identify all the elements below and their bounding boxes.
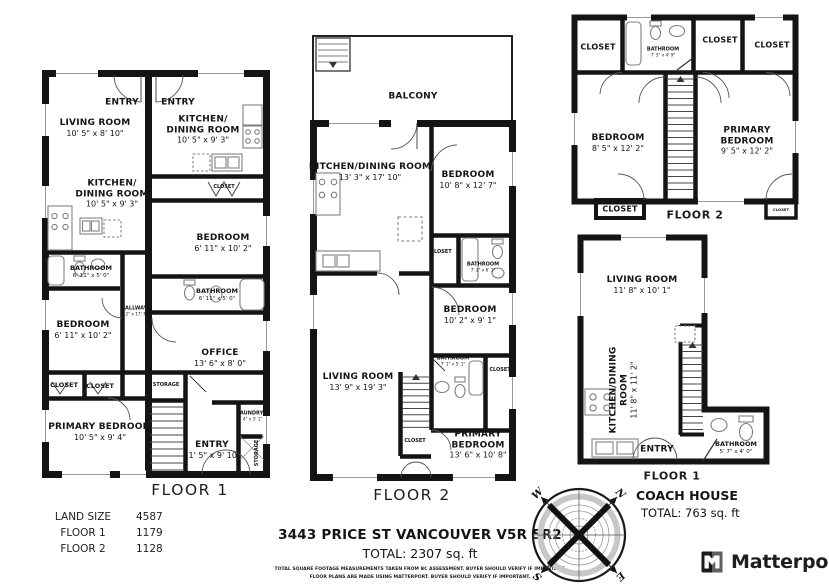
stat-value: 1179 [136,527,182,539]
coach-house-title: COACH HOUSE [636,488,740,503]
room-label-balcony: BALCONY [388,92,437,103]
room-label-closet-mid: CLOSET [430,250,451,256]
room-label-hallway: HALLWAY3' 2" x 17' 7" [120,307,147,318]
floorplan-sheet: ENTRY LIVING ROOM10' 5" x 8' 10" KITCHEN… [0,0,829,586]
stat-value: 4587 [136,511,182,523]
stat-row-floor2: FLOOR 21128 [46,541,182,557]
room-label-coach-primary: PRIMARYBEDROOM9' 5" x 12' 2" [720,126,773,157]
room-label-entry-right: ENTRY [161,98,195,109]
coach-floor1-caption: FLOOR 1 [644,470,701,483]
room-label-laundry: LAUNDRY2' 4" x 3' 1" [237,412,264,423]
room-label-coach-entry: ENTRY [640,445,674,456]
room-label-primary-bedroom: PRIMARY BEDROOM10' 5" x 9' 4" [48,422,152,442]
stat-label: FLOOR 1 [46,527,120,539]
room-label-bedroom-mid: BEDROOM10' 2" x 9' 1" [443,305,496,325]
coach-floor1-walls-drawing [576,233,771,473]
stat-value: 1128 [136,543,182,555]
coach-house-floor1-plan: LIVING ROOM11' 8" x 10' 1" KITCHEN/DININ… [576,233,771,473]
room-label-living-room: LIVING ROOM10' 5" x 8' 10" [60,118,131,138]
room-label-storage-small: STORAGE [153,383,180,389]
room-label-entry-left: ENTRY [105,98,139,109]
room-label-bedroom-right: BEDROOM6' 11" x 10' 2" [194,233,251,253]
balcony-outline [313,36,512,123]
room-label-kitchen-right: KITCHEN/DINING ROOM10' 5" x 9' 3" [166,115,239,146]
room-label-primary-bedroom: PRIMARYBEDROOM13' 6" x 10' 8" [449,430,506,461]
coach-house-total: TOTAL: 763 sq. ft [641,506,740,520]
room-label-closet-tl: CLOSET [580,42,615,51]
room-label-coach-living: LIVING ROOM11' 8" x 10' 1" [607,275,678,295]
coach-house-block: COACH HOUSE TOTAL: 763 sq. ft [636,488,740,520]
main-house-floor2-plan: BALCONY KITCHEN/DINING ROOM13' 3" x 17' … [305,25,520,485]
main-floor1-caption: FLOOR 1 [151,481,228,499]
room-label-bathroom-top: BATHROOM7' 2" x 6' 1" [467,263,499,274]
main-house-floor1-plan: ENTRY LIVING ROOM10' 5" x 8' 10" KITCHEN… [40,66,272,482]
room-label-closet-b: CLOSET [86,383,114,391]
room-label-closet-br: CLOSET [773,208,789,212]
room-label-bedroom-left: BEDROOM6' 11" x 10' 2" [54,320,111,340]
room-label-bathroom-right: BATHROOM6' 11" x 5' 0" [196,288,238,302]
matterport-logo: Matterport [699,549,829,575]
property-address: 3443 PRICE ST VANCOUVER V5R 5R2 [274,527,565,543]
coach-house-floor2-plan: CLOSET BATHROOM7' 5" x 4' 9" CLOSET CLOS… [570,13,800,223]
stat-label: LAND SIZE [46,511,120,523]
stat-row-land-size: LAND SIZE4587 [46,509,182,525]
room-label-bedroom-top: BEDROOM10' 8" x 12' 7" [439,170,496,190]
room-label-bathroom-mid: BATHROOM7' 1" x 5' 1" [437,357,469,368]
room-label-bathroom-left: BATHROOM6' 11" x 5' 0" [70,265,112,279]
stat-row-floor1: FLOOR 11179 [46,525,182,541]
room-label-coach-bathroom1: BATHROOM5' 7" x 4' 0" [715,441,757,455]
room-label-coach-bedroom: BEDROOM8' 5" x 12' 2" [591,133,644,153]
room-label-kitchen-dining: KITCHEN/DINING ROOM13' 3" x 17' 10" [309,162,431,182]
room-label-closet-bl: CLOSET [602,204,637,213]
room-label-coach-kitchen: KITCHEN/DININGROOM11' 8" x 11' 2" [609,347,640,434]
room-label-closet-tr: CLOSET [754,40,789,49]
disclaimer-line2: FLOOR PLANS ARE MADE USING MATTERPORT. B… [274,574,565,582]
matterport-logo-icon [699,549,725,575]
coach-floor2-caption: FLOOR 2 [667,209,724,222]
disclaimer-line1: TOTAL SQUARE FOOTAGE MEASUREMENTS TAKEN … [274,566,565,574]
room-label-closet-right: CLOSET [489,368,510,374]
disclaimer: TOTAL SQUARE FOOTAGE MEASUREMENTS TAKEN … [274,566,565,582]
matterport-logo-text: Matterport [731,551,829,573]
compass-rose: N W S E [527,483,631,586]
room-label-closet-tm: CLOSET [702,35,737,44]
stat-label: FLOOR 2 [46,543,120,555]
room-label-entry-bottom: ENTRY11' 5" x 9' 10" [183,440,240,460]
room-label-office: OFFICE13' 6" x 8' 0" [194,348,246,368]
room-label-kitchen-left: KITCHEN/DINING ROOM10' 5" x 9' 3" [75,179,148,210]
room-label-closet-stairs: CLOSET [404,439,425,445]
room-label-storage-vert: STORAGE [255,440,261,467]
address-block: 3443 PRICE ST VANCOUVER V5R 5R2 TOTAL: 2… [274,527,565,582]
area-stats-table: LAND SIZE4587 FLOOR 11179 FLOOR 21128 [46,509,182,557]
room-label-living-room: LIVING ROOM13' 9" x 19' 3" [323,372,394,392]
room-label-closet-right: CLOSET [213,185,234,191]
total-area: TOTAL: 2307 sq. ft [274,546,565,561]
room-label-closet-a: CLOSET [50,382,78,390]
room-label-coach-bathroom2: BATHROOM7' 5" x 4' 9" [647,48,679,59]
main-floor2-caption: FLOOR 2 [373,486,450,504]
